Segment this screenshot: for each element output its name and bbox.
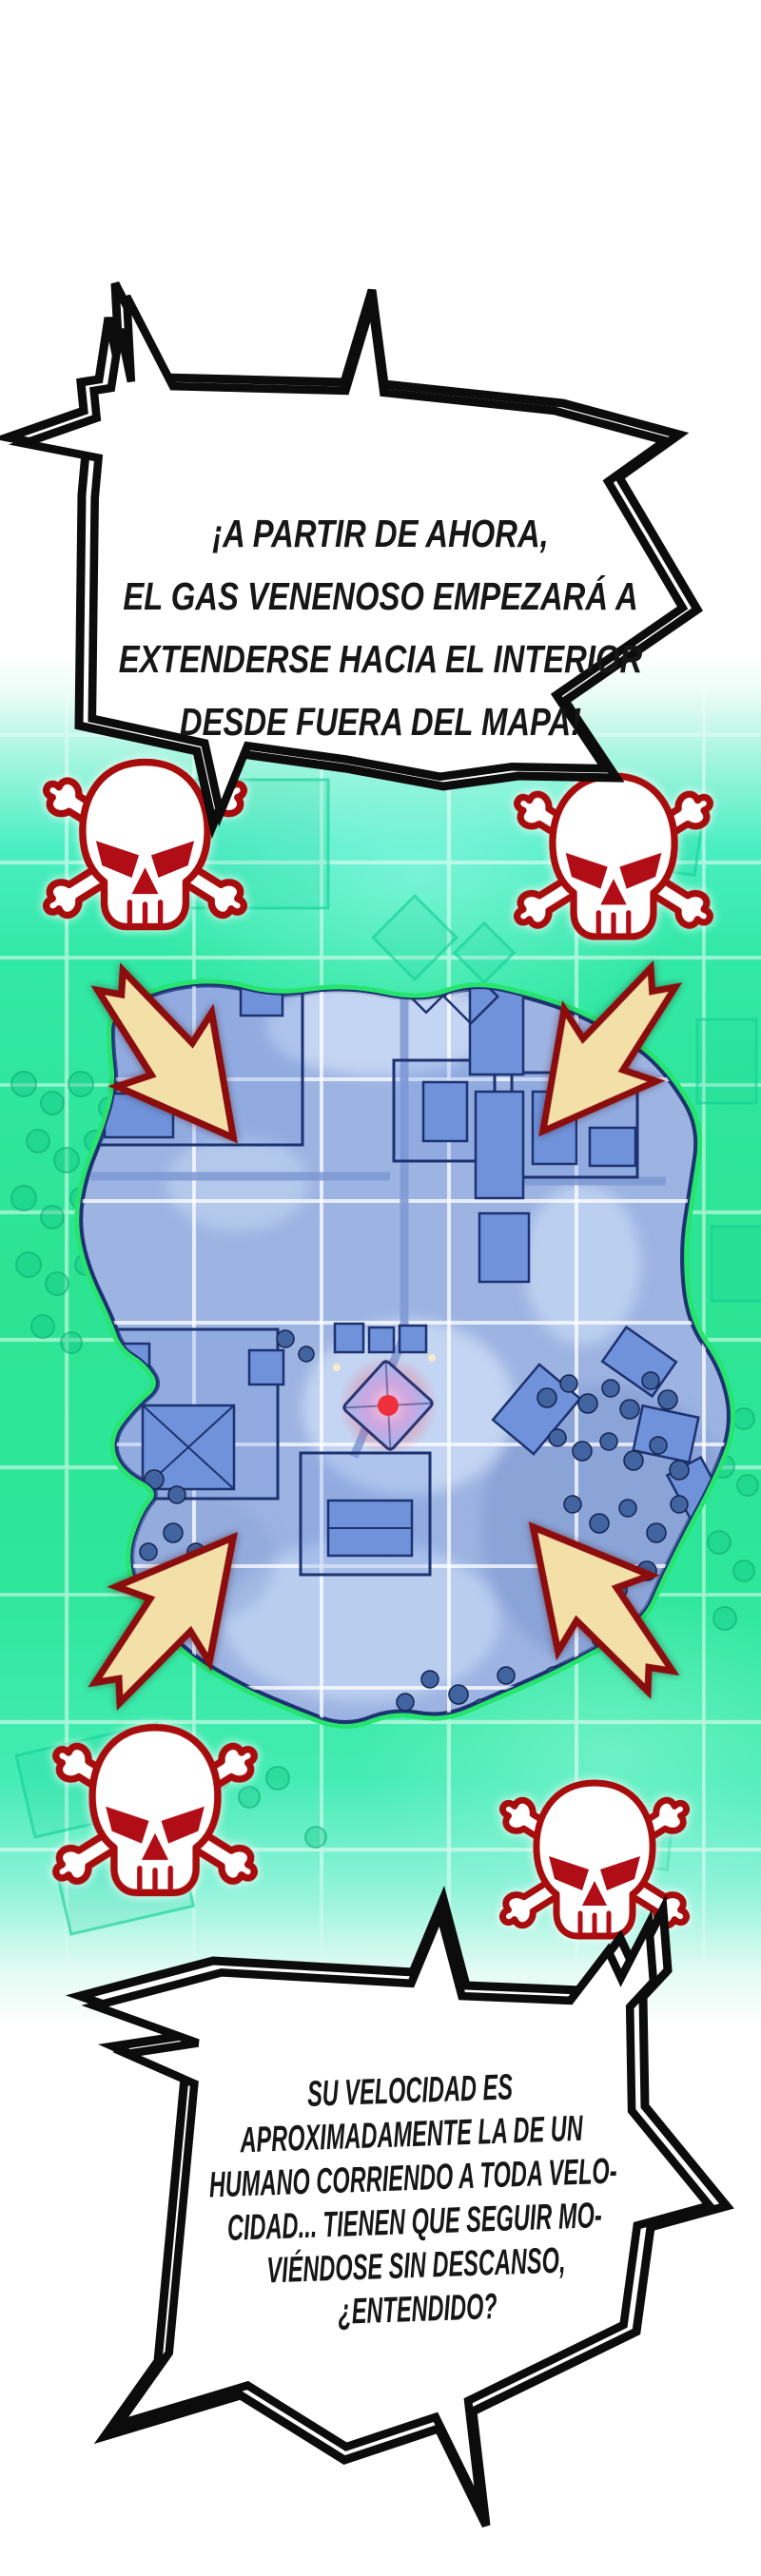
- top-bubble-text: ¡A PARTIR DE AHORA, EL GAS VENENOSO EMPE…: [48, 502, 713, 753]
- speech-line: DESDE FUERA DEL MAPA!: [114, 690, 647, 753]
- marker-red-dot: [378, 1395, 399, 1416]
- comic-panel: ¡A PARTIR DE AHORA, EL GAS VENENOSO EMPE…: [0, 0, 761, 2576]
- bottom-bubble-text: SU VELOCIDAD ES APROXIMADAMENTE LA DE UN…: [76, 2058, 751, 2343]
- speech-line: EXTENDERSE HACIA EL INTERIOR: [114, 628, 647, 690]
- speech-line: ¡A PARTIR DE AHORA,: [114, 502, 647, 565]
- speech-line: EL GAS VENENOSO EMPEZARÁ A: [114, 565, 647, 628]
